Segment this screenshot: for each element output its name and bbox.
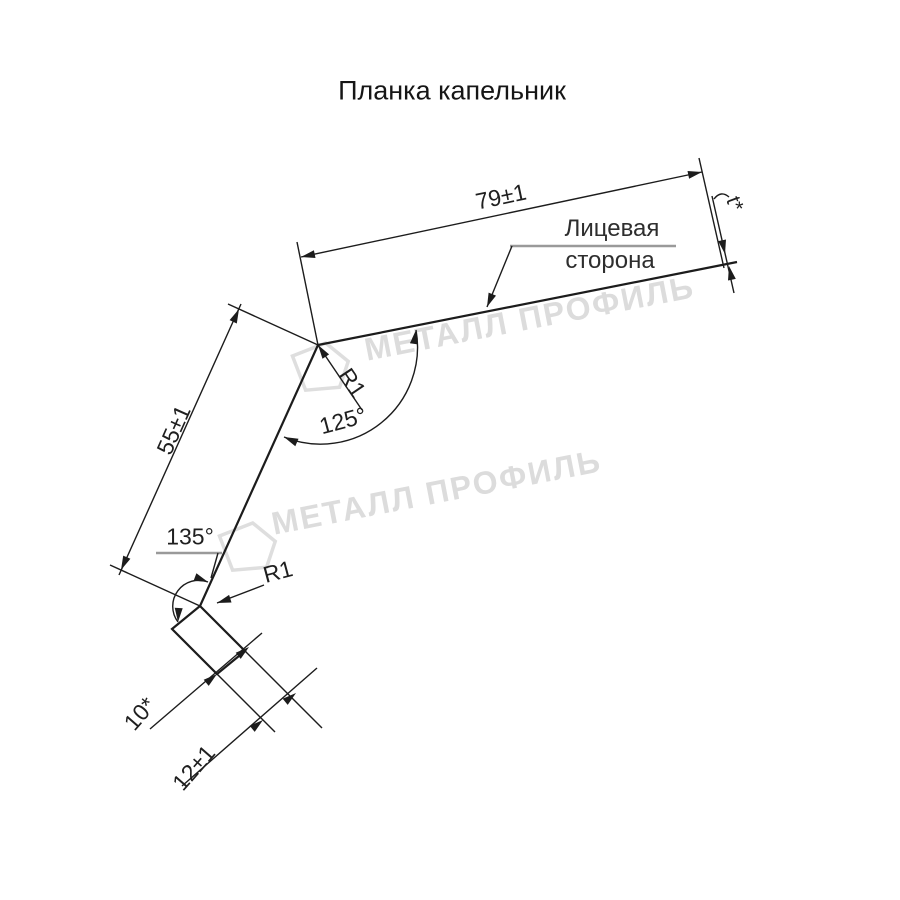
dim-10-arrow-lower bbox=[204, 674, 217, 686]
top-flange-line bbox=[318, 262, 737, 345]
lip-extension-top bbox=[245, 651, 322, 728]
angle-135-arrow-top bbox=[194, 573, 208, 582]
dim-55-arrow-top bbox=[230, 309, 239, 324]
face-side-label-line2: сторона bbox=[565, 247, 654, 275]
radius-r1-top-arrow bbox=[318, 345, 329, 359]
dim-55-extension-bottom bbox=[110, 565, 200, 606]
drawing-canvas: МЕТАЛЛ ПРОФИЛЬ МЕТАЛЛ ПРОФИЛЬ bbox=[0, 0, 900, 900]
angle-125-arrow-bottom bbox=[284, 437, 299, 446]
dim-55-arrow-bottom bbox=[121, 556, 130, 570]
dim-79-arrow-left bbox=[301, 250, 316, 258]
angle-135-label: 135° bbox=[166, 524, 214, 551]
dim-79-arrow-right bbox=[688, 171, 703, 179]
drip-lip-outline bbox=[172, 606, 245, 674]
face-side-leader-arrow bbox=[487, 293, 496, 307]
thickness-arrow-lower bbox=[728, 266, 736, 281]
profile-drawing bbox=[0, 0, 900, 900]
dim-79-extension-right bbox=[699, 158, 724, 268]
lip-extension-bottom bbox=[217, 674, 275, 732]
face-side-label-line1: Лицевая bbox=[565, 215, 660, 243]
radius-r1-bottom-arrow bbox=[217, 595, 232, 603]
drawing-title: Планка капельник bbox=[338, 76, 566, 107]
dim-55-extension-top bbox=[228, 304, 318, 345]
